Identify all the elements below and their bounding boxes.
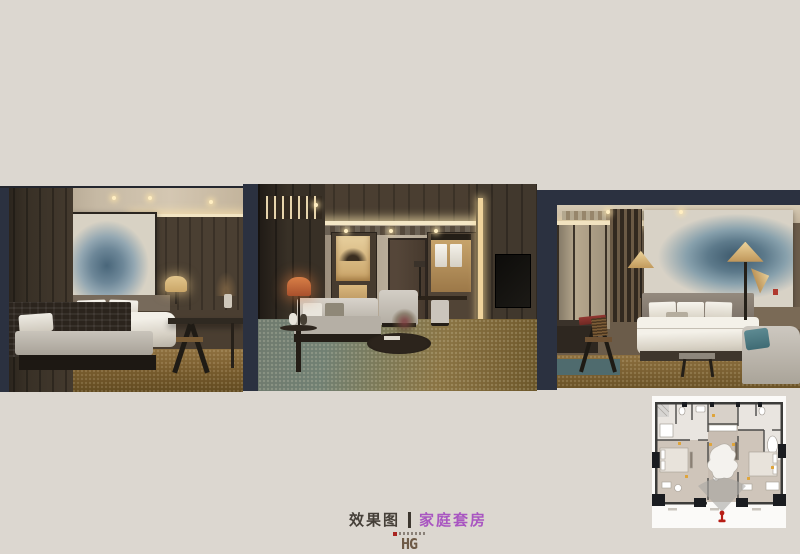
rendering-bedroom-one	[0, 186, 243, 392]
chair-woven-back	[591, 318, 607, 338]
television	[495, 254, 530, 308]
coffee-table-books	[384, 336, 401, 340]
side-table-leg	[296, 331, 302, 372]
company-logo: HG	[393, 531, 425, 552]
desk-chair	[431, 300, 449, 326]
hanging-clothes	[450, 244, 462, 267]
white-vase	[289, 313, 297, 324]
folding-screens	[557, 225, 610, 329]
rendering-bedroom-two	[557, 205, 800, 388]
logo-monogram: HG	[401, 537, 417, 552]
table-plant	[392, 308, 417, 333]
caption: 效果图 家庭套房	[349, 509, 487, 530]
orange-table-lamp	[287, 277, 311, 296]
caption-title: 家庭套房	[419, 509, 487, 530]
panel-frame-left	[537, 205, 557, 390]
floor-lamp-stem	[744, 262, 746, 321]
logo-red-mark	[393, 532, 397, 536]
floor-plan	[652, 396, 786, 528]
duvet-fold	[637, 328, 759, 330]
bed-duvet	[637, 317, 759, 355]
ink-painting	[70, 212, 157, 302]
painting-seal	[773, 289, 777, 294]
ceiling-spotlight	[389, 229, 393, 233]
caption-prefix: 效果图	[349, 509, 400, 530]
chair-seat	[585, 337, 612, 342]
daybed-base	[19, 355, 155, 369]
table-lamp	[165, 276, 187, 292]
presentation-board: 效果图 家庭套房 HG	[0, 0, 800, 554]
wardrobe-shelf	[431, 234, 471, 240]
hanging-clothes	[435, 244, 447, 267]
daybed-cushion	[15, 331, 154, 355]
vase	[224, 294, 233, 308]
niche-ornament	[339, 248, 367, 260]
table-lamp-stem	[175, 290, 177, 304]
panel-frame-top	[537, 190, 800, 205]
section-cut-edge	[0, 188, 9, 392]
teal-pillow	[744, 328, 771, 351]
ceiling-spotlight	[314, 203, 318, 207]
slatted-transom	[266, 196, 322, 219]
dark-vase	[300, 314, 307, 324]
desk-leg	[231, 323, 235, 368]
dried-plant	[214, 270, 238, 297]
floor-lamp-stem	[419, 267, 421, 298]
ceiling-spotlight	[112, 196, 116, 200]
chair-seat	[176, 337, 203, 342]
ceiling-spotlight	[434, 229, 438, 233]
caption-divider	[408, 512, 411, 528]
sofa-pillow	[325, 303, 345, 317]
floor-lamp-stem	[640, 267, 642, 298]
panel-divider	[243, 184, 258, 391]
rendering-living-room	[258, 184, 537, 391]
